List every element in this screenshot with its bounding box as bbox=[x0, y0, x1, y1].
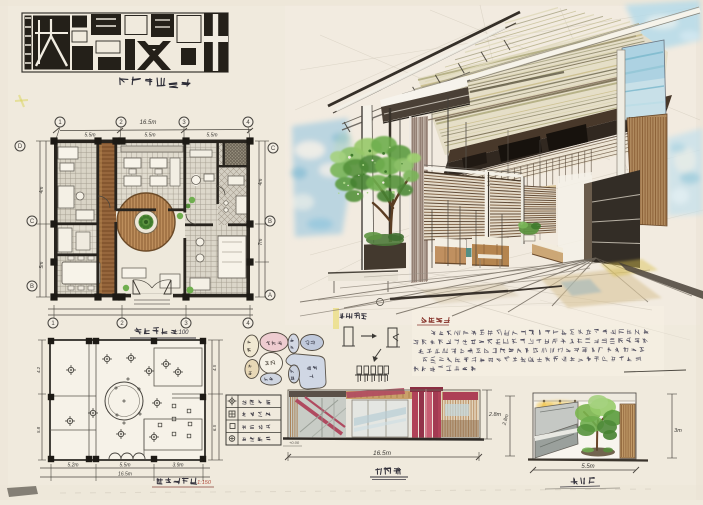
svg-text:C: C bbox=[30, 219, 35, 225]
svg-text:5.5m: 5.5m bbox=[206, 133, 217, 139]
svg-text:16.5m: 16.5m bbox=[373, 450, 392, 457]
svg-text:D: D bbox=[18, 144, 23, 150]
svg-text:5m: 5m bbox=[39, 262, 45, 269]
svg-text:1:100: 1:100 bbox=[173, 330, 189, 336]
svg-text:5.5m: 5.5m bbox=[84, 133, 95, 139]
svg-text:1:150: 1:150 bbox=[197, 480, 212, 486]
svg-text:A: A bbox=[268, 293, 272, 299]
svg-text:4m: 4m bbox=[39, 187, 45, 194]
svg-text:3.9m: 3.9m bbox=[172, 463, 183, 469]
svg-text:3m: 3m bbox=[674, 428, 682, 434]
svg-text:5.2m: 5.2m bbox=[67, 463, 78, 469]
svg-text:4.2: 4.2 bbox=[36, 366, 41, 373]
svg-text:4m: 4m bbox=[258, 179, 264, 186]
svg-text:+0.00: +0.00 bbox=[289, 440, 300, 445]
svg-text:C: C bbox=[271, 146, 276, 152]
svg-text:5.5m: 5.5m bbox=[581, 464, 594, 470]
svg-text:7m: 7m bbox=[258, 239, 264, 246]
svg-text:16.5m: 16.5m bbox=[118, 472, 132, 478]
svg-text:5.5m: 5.5m bbox=[119, 463, 130, 469]
svg-text:6.5: 6.5 bbox=[212, 424, 217, 431]
svg-text:4.5: 4.5 bbox=[212, 364, 217, 371]
svg-text:5.5m: 5.5m bbox=[144, 133, 155, 139]
svg-text:5.8: 5.8 bbox=[36, 426, 41, 433]
svg-text:2.8m: 2.8m bbox=[488, 412, 502, 418]
svg-text:B: B bbox=[268, 219, 272, 225]
svg-text:B: B bbox=[30, 284, 34, 290]
svg-text:16.5m: 16.5m bbox=[140, 120, 157, 126]
